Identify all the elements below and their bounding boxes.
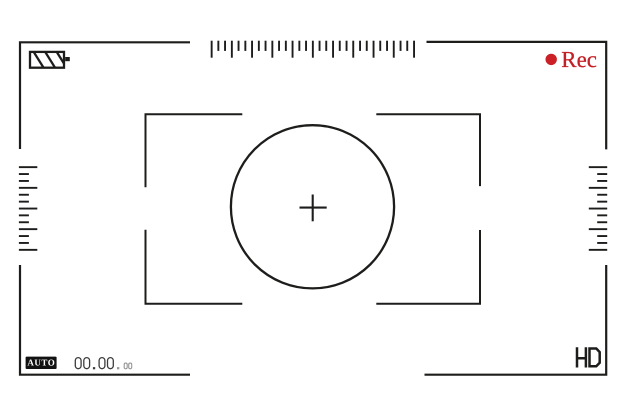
- svg-text:AUTO: AUTO: [27, 358, 55, 368]
- svg-text:Rec: Rec: [561, 47, 597, 72]
